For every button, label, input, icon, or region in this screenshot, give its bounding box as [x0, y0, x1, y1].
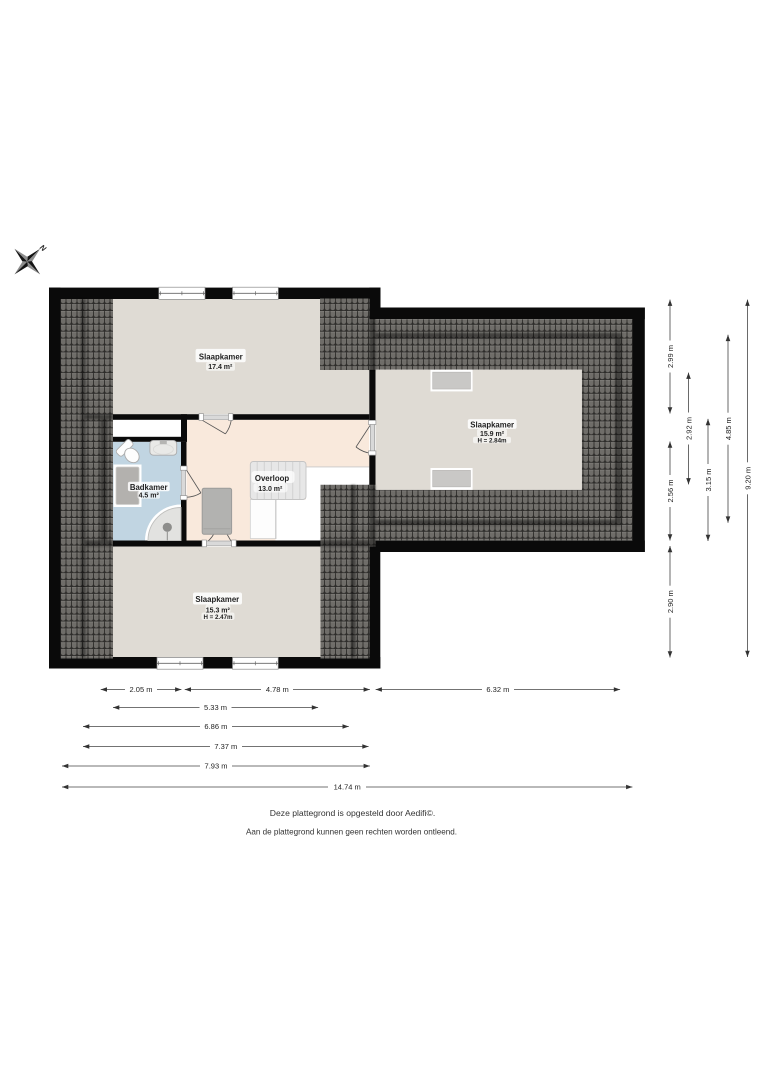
svg-text:3.15 m: 3.15 m — [704, 469, 713, 492]
svg-text:Aan de plattegrond kunnen geen: Aan de plattegrond kunnen geen rechten w… — [246, 828, 457, 837]
svg-text:Overloop: Overloop — [255, 474, 289, 483]
svg-text:7.37 m: 7.37 m — [214, 742, 237, 751]
svg-text:9.20 m: 9.20 m — [744, 467, 753, 490]
svg-text:4.78 m: 4.78 m — [266, 685, 289, 694]
svg-text:Slaapkamer: Slaapkamer — [470, 421, 514, 430]
svg-text:2.05 m: 2.05 m — [130, 685, 153, 694]
svg-text:4.85 m: 4.85 m — [724, 417, 733, 440]
svg-text:6.32 m: 6.32 m — [486, 685, 509, 694]
svg-text:7.93 m: 7.93 m — [205, 762, 228, 771]
svg-text:2.99 m: 2.99 m — [666, 345, 675, 368]
svg-text:14.74 m: 14.74 m — [334, 783, 361, 792]
svg-text:17.4 m²: 17.4 m² — [208, 364, 233, 371]
svg-text:H = 2.47m: H = 2.47m — [203, 614, 233, 621]
svg-text:H = 2.84m: H = 2.84m — [477, 437, 507, 444]
svg-text:13.0 m²: 13.0 m² — [258, 486, 283, 493]
svg-text:5.33 m: 5.33 m — [204, 703, 227, 712]
svg-text:2.56 m: 2.56 m — [666, 480, 675, 503]
svg-text:Slaapkamer: Slaapkamer — [199, 353, 243, 362]
svg-text:4.5 m²: 4.5 m² — [139, 493, 160, 500]
svg-text:2.90 m: 2.90 m — [666, 590, 675, 613]
svg-text:2.92 m: 2.92 m — [685, 417, 694, 440]
svg-text:Deze plattegrond is opgesteld: Deze plattegrond is opgesteld door Aedif… — [270, 808, 435, 818]
svg-text:Slaapkamer: Slaapkamer — [195, 595, 239, 604]
svg-text:Badkamer: Badkamer — [130, 483, 168, 492]
svg-text:6.86 m: 6.86 m — [204, 722, 227, 731]
